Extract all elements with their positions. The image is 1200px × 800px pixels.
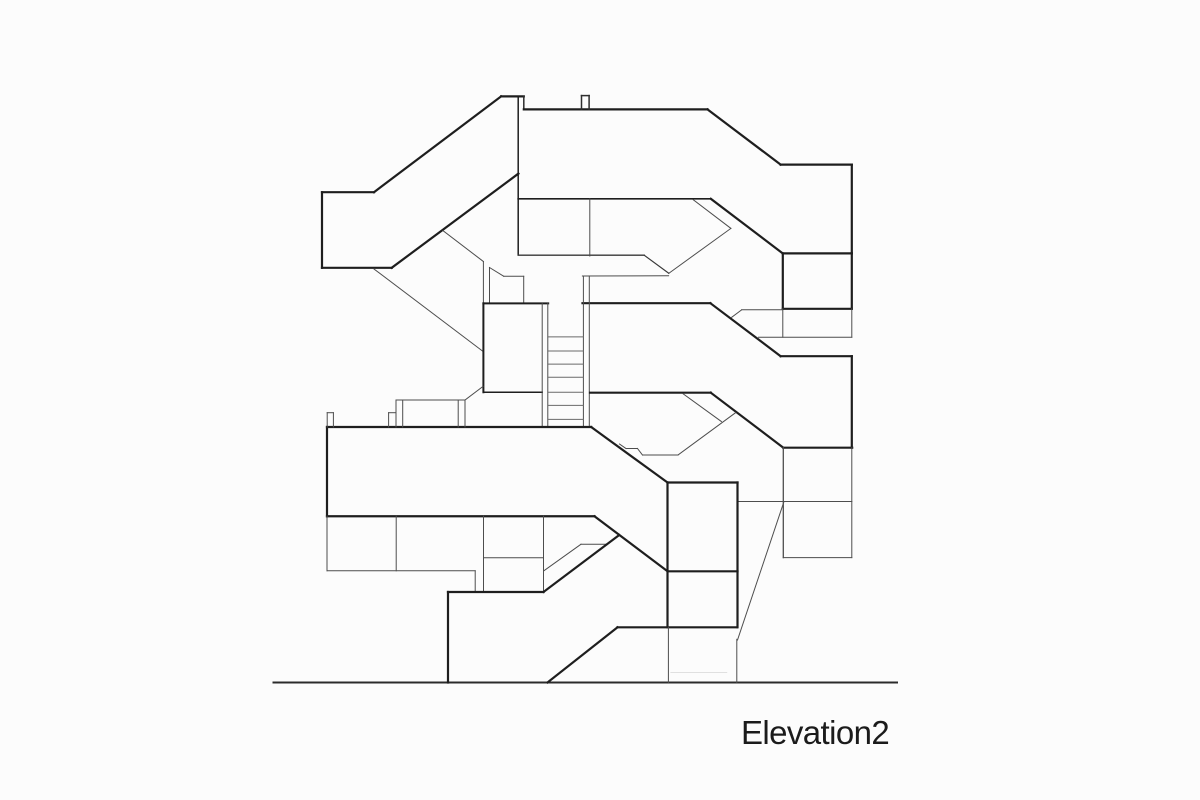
svg-text:Elevation2: Elevation2: [741, 714, 889, 751]
